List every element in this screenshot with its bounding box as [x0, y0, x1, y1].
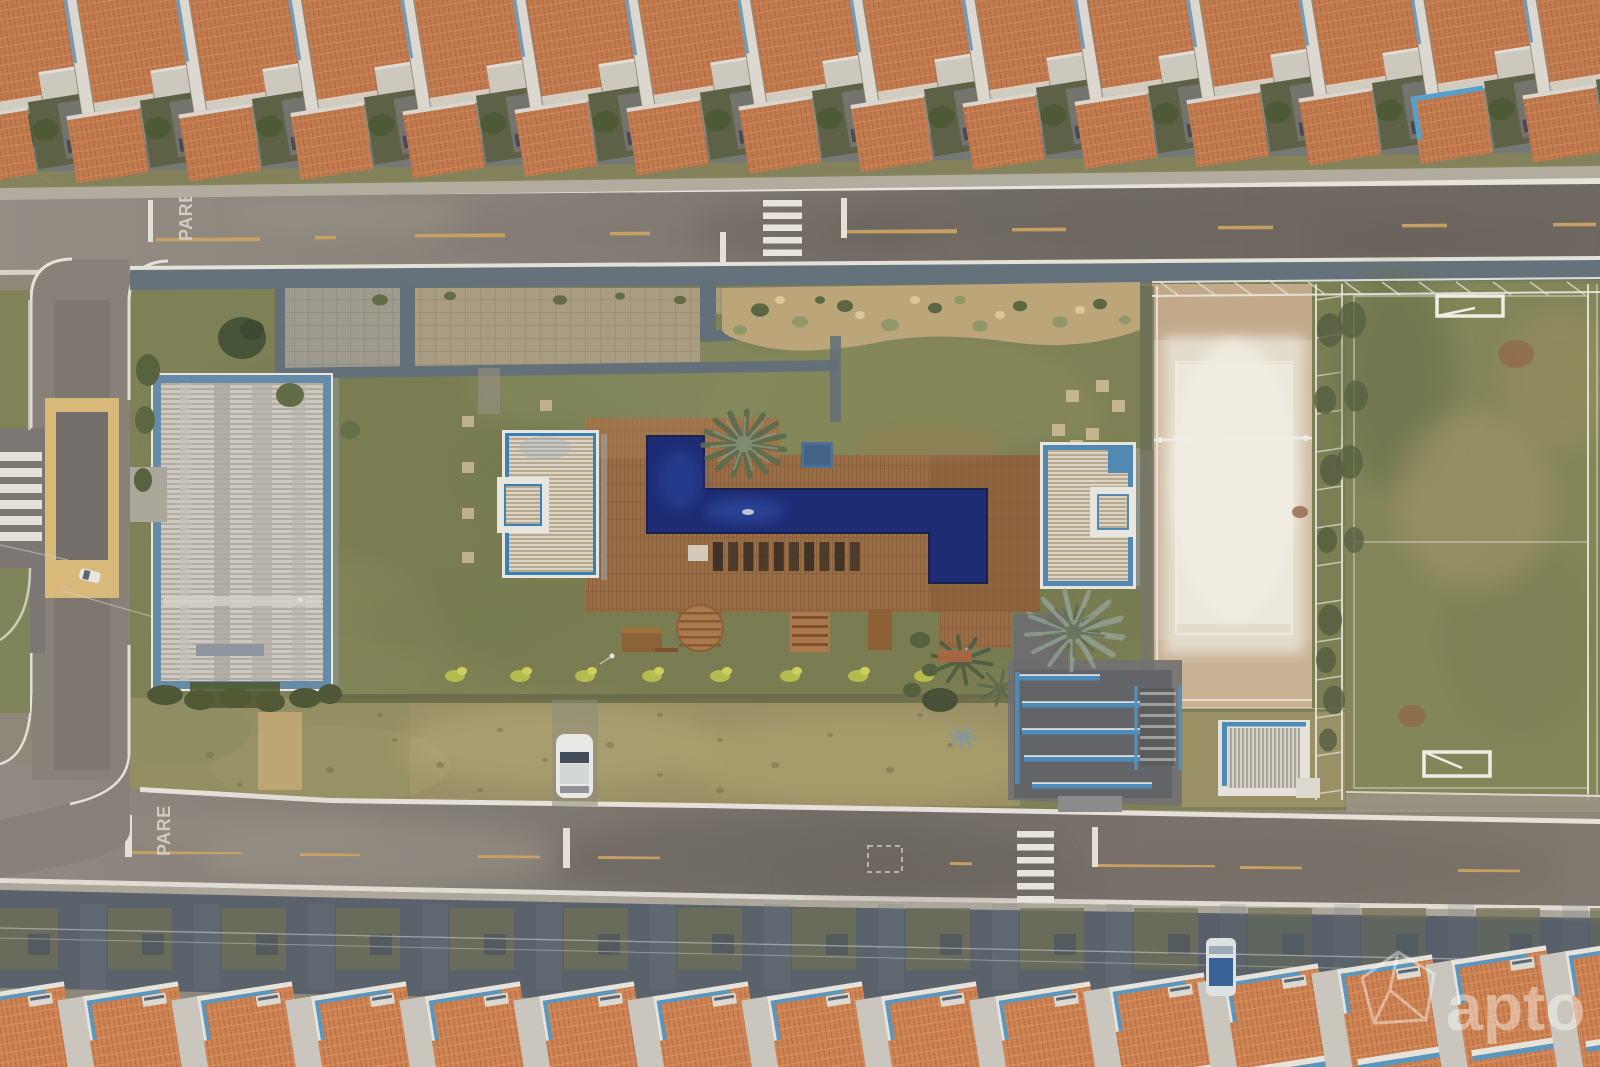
- svg-text:apto: apto: [1446, 970, 1585, 1044]
